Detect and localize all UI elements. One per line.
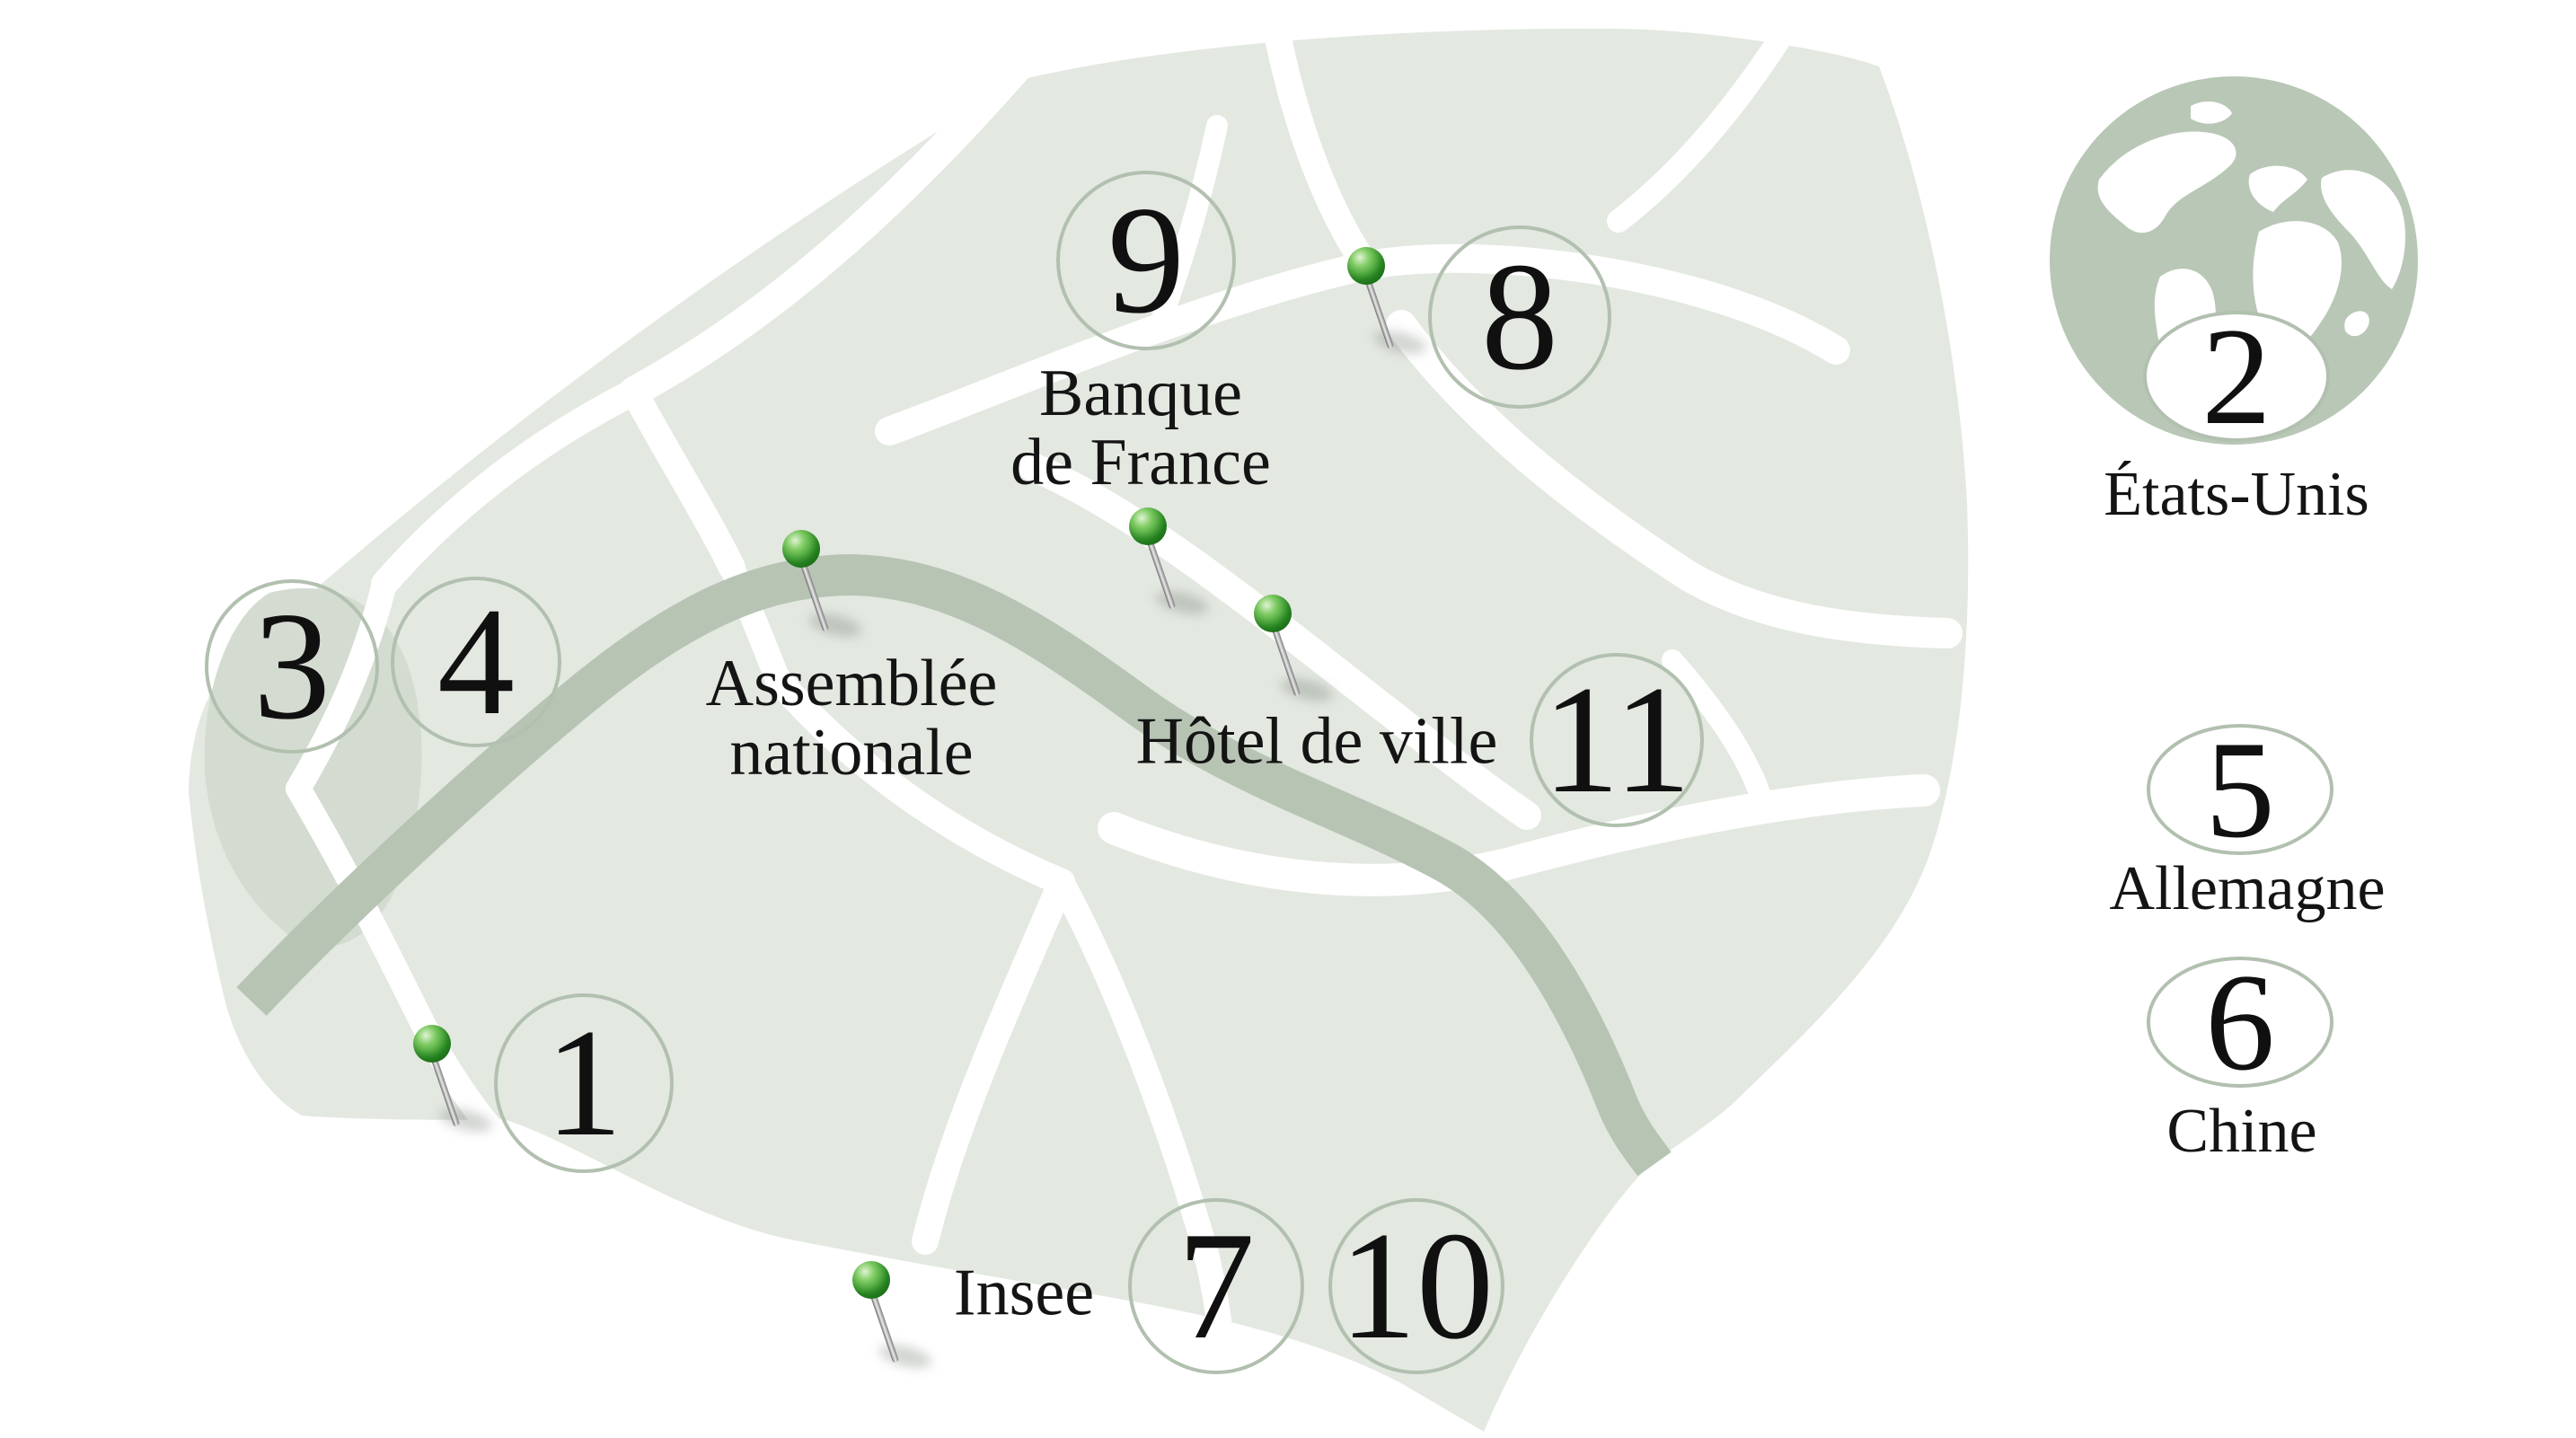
pin-head	[1254, 595, 1292, 632]
banque-line2: de France	[1010, 428, 1271, 498]
insee-label: Insee	[954, 1259, 1094, 1328]
marker-number: 3	[253, 589, 331, 744]
legend-marker-5: 5	[2147, 724, 2333, 855]
pin-head	[413, 1025, 451, 1063]
map-marker-8: 8	[1428, 225, 1611, 409]
legend-number: 5	[2205, 720, 2275, 860]
legend-label-chine: Chine	[2166, 1100, 2316, 1163]
paris-map-infographic: 1 3 4 7 8 9 10 11 Banque de France Assem…	[0, 0, 2576, 1438]
marker-number: 7	[1178, 1209, 1255, 1363]
assemblee-nationale-label: Assemblée nationale	[706, 649, 998, 788]
marker-number: 11	[1542, 663, 1691, 817]
assemblee-line1: Assemblée	[706, 649, 998, 719]
hotel-de-ville-label: Hôtel de ville	[1136, 708, 1498, 777]
legend-label-allemagne: Allemagne	[2109, 858, 2385, 921]
map-marker-10: 10	[1328, 1198, 1504, 1374]
map-marker-3: 3	[205, 579, 379, 754]
pin-head	[1347, 247, 1385, 285]
legend-label-etats-unis: États-Unis	[2104, 463, 2369, 526]
pin-head	[852, 1261, 890, 1299]
marker-number: 4	[437, 585, 515, 739]
legend-marker-6: 6	[2147, 957, 2333, 1088]
banque-de-france-label: Banque de France	[1010, 359, 1271, 498]
pin-head	[1129, 507, 1167, 545]
legend-marker-2: 2	[2143, 311, 2330, 442]
map-marker-11: 11	[1530, 653, 1704, 827]
map-marker-1: 1	[494, 993, 674, 1173]
map-marker-7: 7	[1128, 1198, 1304, 1374]
marker-number: 8	[1481, 240, 1558, 394]
marker-number: 9	[1107, 183, 1185, 338]
map-marker-4: 4	[391, 577, 561, 747]
assemblee-line2: nationale	[706, 719, 998, 788]
pin-head	[782, 530, 820, 568]
marker-number: 1	[545, 1006, 622, 1160]
marker-number: 10	[1339, 1209, 1494, 1363]
legend-number: 2	[2201, 307, 2272, 446]
legend-number: 6	[2205, 953, 2275, 1092]
banque-line1: Banque	[1010, 359, 1271, 428]
map-marker-9: 9	[1056, 171, 1236, 350]
